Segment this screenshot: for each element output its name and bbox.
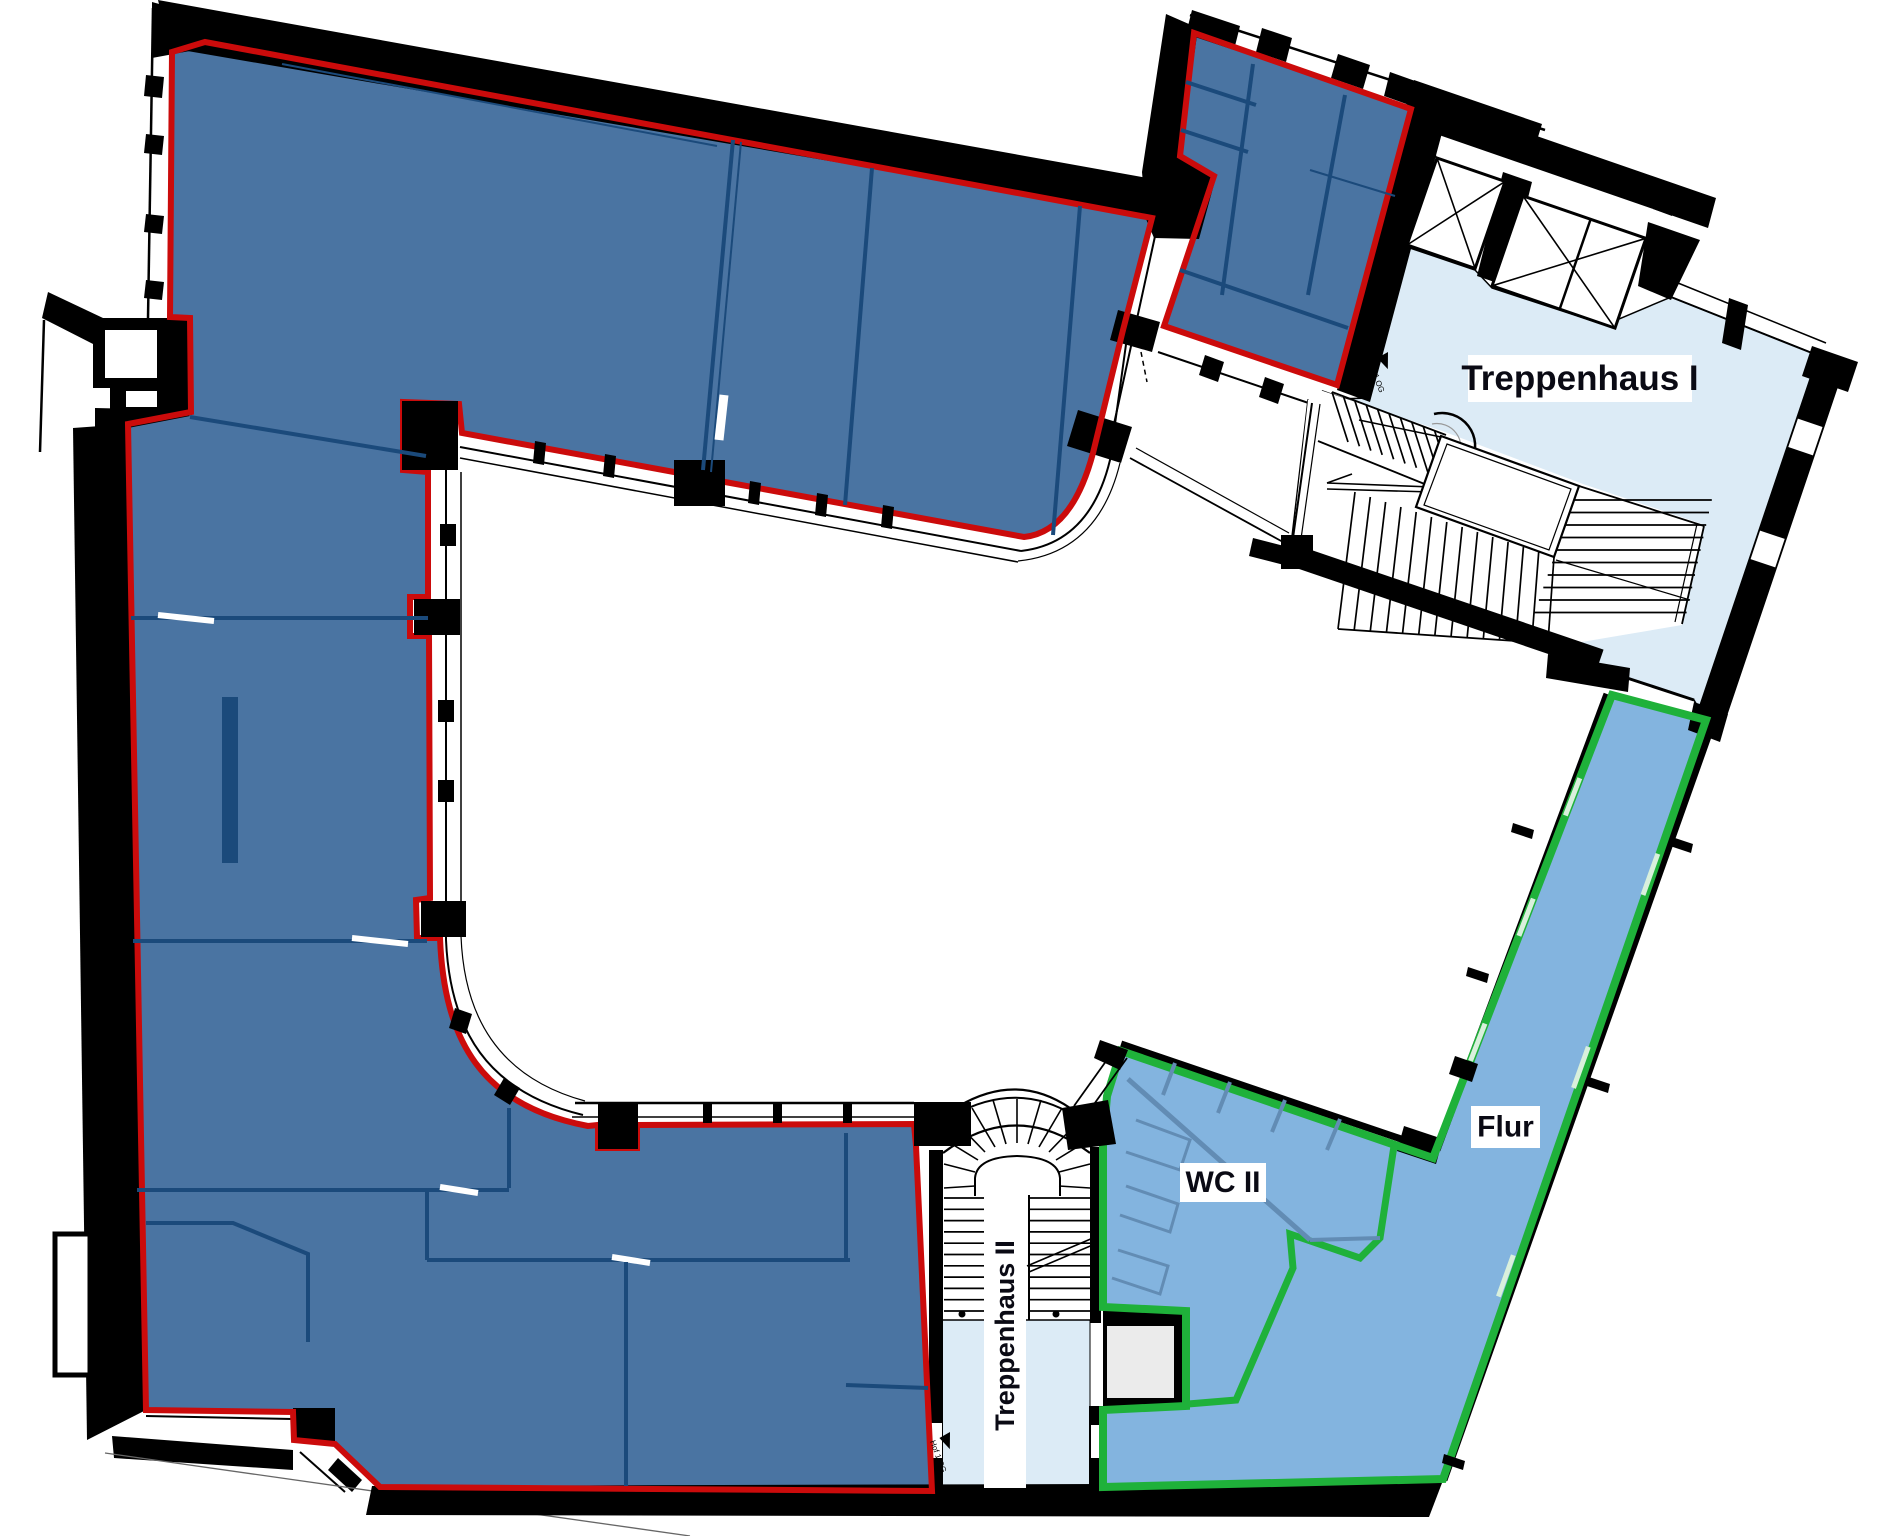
svg-text:Flur: Flur	[1477, 1111, 1534, 1144]
svg-text:Treppenhaus II: Treppenhaus II	[990, 1240, 1020, 1431]
svg-text:WC II: WC II	[1186, 1166, 1261, 1199]
svg-text:Treppenhaus I: Treppenhaus I	[1461, 359, 1698, 398]
